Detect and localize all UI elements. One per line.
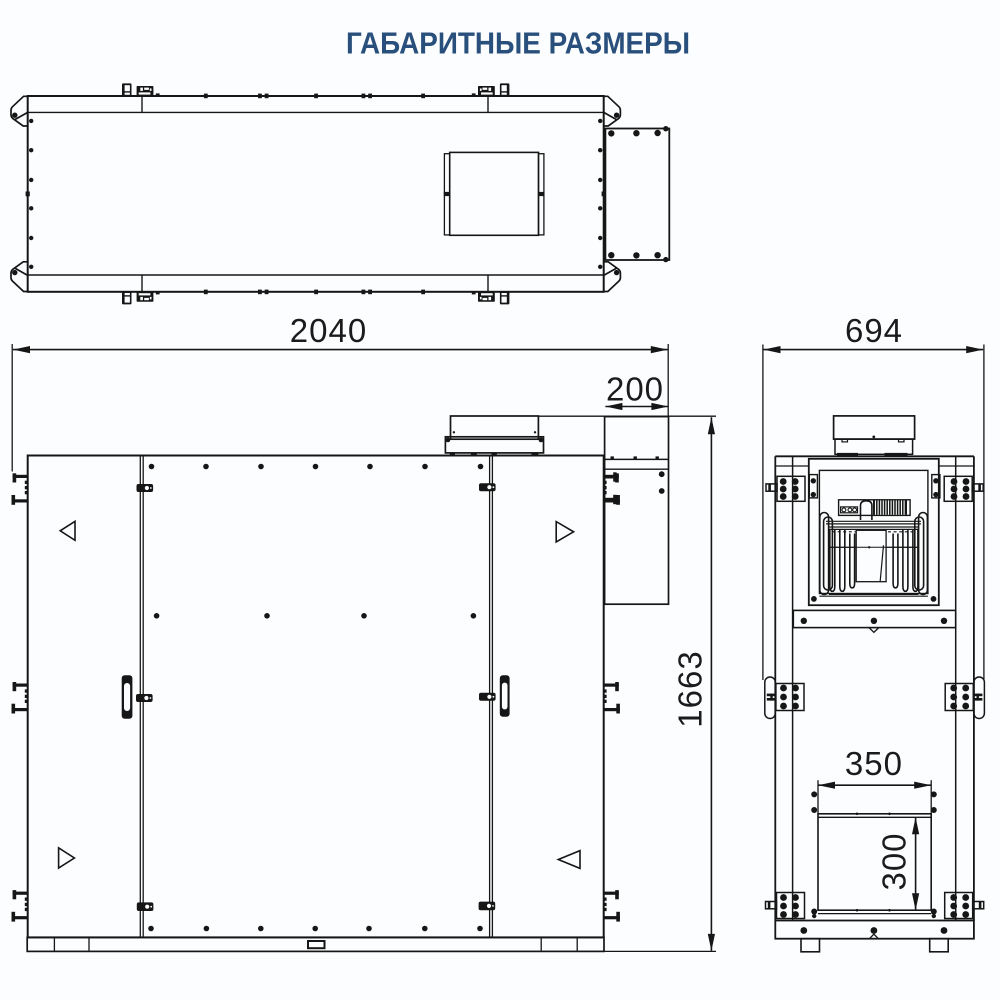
svg-text:1663: 1663 (672, 650, 709, 727)
svg-text:694: 694 (845, 312, 903, 349)
svg-text:200: 200 (606, 371, 664, 408)
svg-text:350: 350 (845, 745, 903, 782)
svg-text:2040: 2040 (290, 312, 367, 349)
svg-text:300: 300 (876, 832, 913, 890)
svg-text:ГАБАРИТНЫЕ РАЗМЕРЫ: ГАБАРИТНЫЕ РАЗМЕРЫ (346, 26, 690, 61)
